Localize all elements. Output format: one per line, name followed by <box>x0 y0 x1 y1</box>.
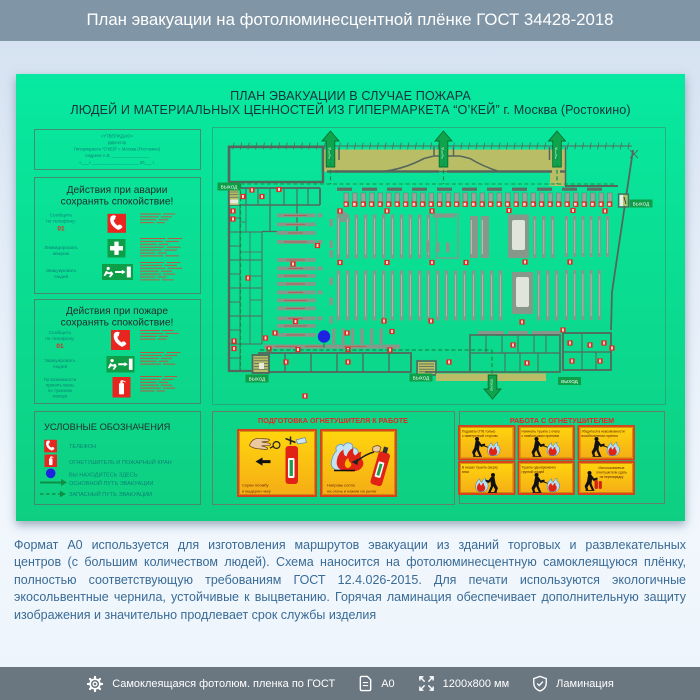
svg-text:ТЕЛЕФОН: ТЕЛЕФОН <box>69 444 96 450</box>
svg-text:ВЫХОД: ВЫХОД <box>490 379 494 391</box>
svg-text:пожара: пожара <box>53 394 68 399</box>
svg-text:на перезарядку: на перезарядку <box>600 475 624 479</box>
svg-text:по телефону:: по телефону: <box>45 336 75 342</box>
svg-text:01: 01 <box>57 226 65 233</box>
svg-text:ВЫХОД: ВЫХОД <box>561 379 579 384</box>
svg-text:по телефону:: по телефону: <box>46 219 76 225</box>
svg-text:принять меры: принять меры <box>46 383 74 388</box>
svg-text:людей: людей <box>53 363 68 370</box>
svg-text:ВЫ НАХОДИТЕСЬ ЗДЕСЬ: ВЫ НАХОДИТЕСЬ ЗДЕСЬ <box>69 473 138 479</box>
svg-text:«УТВЕРЖДАЮ»: «УТВЕРЖДАЮ» <box>101 134 134 139</box>
svg-text:ВЫХОД: ВЫХОД <box>221 185 239 190</box>
svg-text:по тушению: по тушению <box>48 388 73 393</box>
svg-text:аварию: аварию <box>53 252 70 257</box>
svg-text:РАБОТА С ОГНЕТУШИТЕЛЕМ: РАБОТА С ОГНЕТУШИТЕЛЕМ <box>510 416 614 425</box>
svg-text:Гипермаркета “О’КЕЙ” г. Москва: Гипермаркета “О’КЕЙ” г. Москва (Ростокин… <box>74 147 161 152</box>
svg-text:«___» ____________________ 20_: «___» ____________________ 20___ г. <box>79 160 155 165</box>
svg-text:Действия при аварии: Действия при аварии <box>67 185 168 196</box>
svg-text:сохранять спокойствие!: сохранять спокойствие! <box>61 318 174 329</box>
svg-text:В нишах тушить сверху: В нишах тушить сверху <box>462 466 498 470</box>
svg-text:и выдерни чеку: и выдерни чеку <box>242 489 271 494</box>
svg-text:ОГНЕТУШИТЕЛЬ И ПОЖАРНЫЙ КРАН: ОГНЕТУШИТЕЛЬ И ПОЖАРНЫЙ КРАН <box>69 458 172 466</box>
svg-text:ВЫХОД: ВЫХОД <box>249 377 267 382</box>
svg-text:Эвакуировать: Эвакуировать <box>46 268 77 274</box>
svg-text:с наветренной стороны: с наветренной стороны <box>462 434 499 438</box>
svg-text:Тушить одновременно: Тушить одновременно <box>522 466 557 470</box>
svg-text:Ликвидировать: Ликвидировать <box>44 245 78 251</box>
svg-text:Эвакуировать: Эвакуировать <box>45 358 76 364</box>
svg-text:людей: людей <box>54 273 69 280</box>
svg-text:ПОДГОТОВКА ОГНЕТУШИТЕЛЯ К РАБО: ПОДГОТОВКА ОГНЕТУШИТЕЛЯ К РАБОТЕ <box>258 416 408 425</box>
svg-text:вниз: вниз <box>462 470 469 474</box>
svg-text:ВЫХОД: ВЫХОД <box>413 376 431 381</box>
svg-text:сохранять спокойствие!: сохранять спокойствие! <box>61 197 174 208</box>
svg-text:Андреев А.В. ________________: Андреев А.В. ________________ <box>85 153 150 158</box>
svg-text:Сообщить: Сообщить <box>49 330 72 336</box>
svg-text:огнетушители сдать: огнетушители сдать <box>596 471 627 475</box>
svg-text:Направь сопло: Направь сопло <box>327 483 356 488</box>
svg-text:Использованные: Использованные <box>599 466 625 470</box>
svg-text:ВЫХОД: ВЫХОД <box>633 202 651 207</box>
svg-text:Убедиться в невозможности: Убедиться в невозможности <box>582 430 625 434</box>
svg-text:Подавать ОТВ только: Подавать ОТВ только <box>462 430 496 434</box>
svg-text:ЗАПАСНЫЙ ПУТЬ ЭВАКУАЦИИ: ЗАПАСНЫЙ ПУТЬ ЭВАКУАЦИИ <box>69 490 152 498</box>
svg-text:Сообщить: Сообщить <box>50 213 73 219</box>
svg-text:По возможности: По возможности <box>44 377 77 382</box>
svg-text:с наибольшим горением: с наибольшим горением <box>522 434 560 438</box>
svg-text:01: 01 <box>56 343 64 350</box>
svg-text:Начинать тушить с очага: Начинать тушить с очага <box>522 430 560 434</box>
svg-text:Сорви пломбу: Сорви пломбу <box>242 483 269 488</box>
svg-text:Директор: Директор <box>108 140 127 145</box>
svg-text:Действия при пожаре: Действия при пожаре <box>66 306 168 317</box>
svg-text:на огонь и нажми на рычаг: на огонь и нажми на рычаг <box>327 489 377 494</box>
svg-text:УСЛОВНЫЕ ОБОЗНАЧЕНИЯ: УСЛОВНЫЕ ОБОЗНАЧЕНИЯ <box>44 422 170 432</box>
svg-text:группой людей: группой людей <box>522 470 545 474</box>
svg-text:ОСНОВНОЙ ПУТЬ ЭВАКУАЦИИ: ОСНОВНОЙ ПУТЬ ЭВАКУАЦИИ <box>69 479 153 487</box>
svg-text:возобновления горения: возобновления горения <box>582 434 618 438</box>
